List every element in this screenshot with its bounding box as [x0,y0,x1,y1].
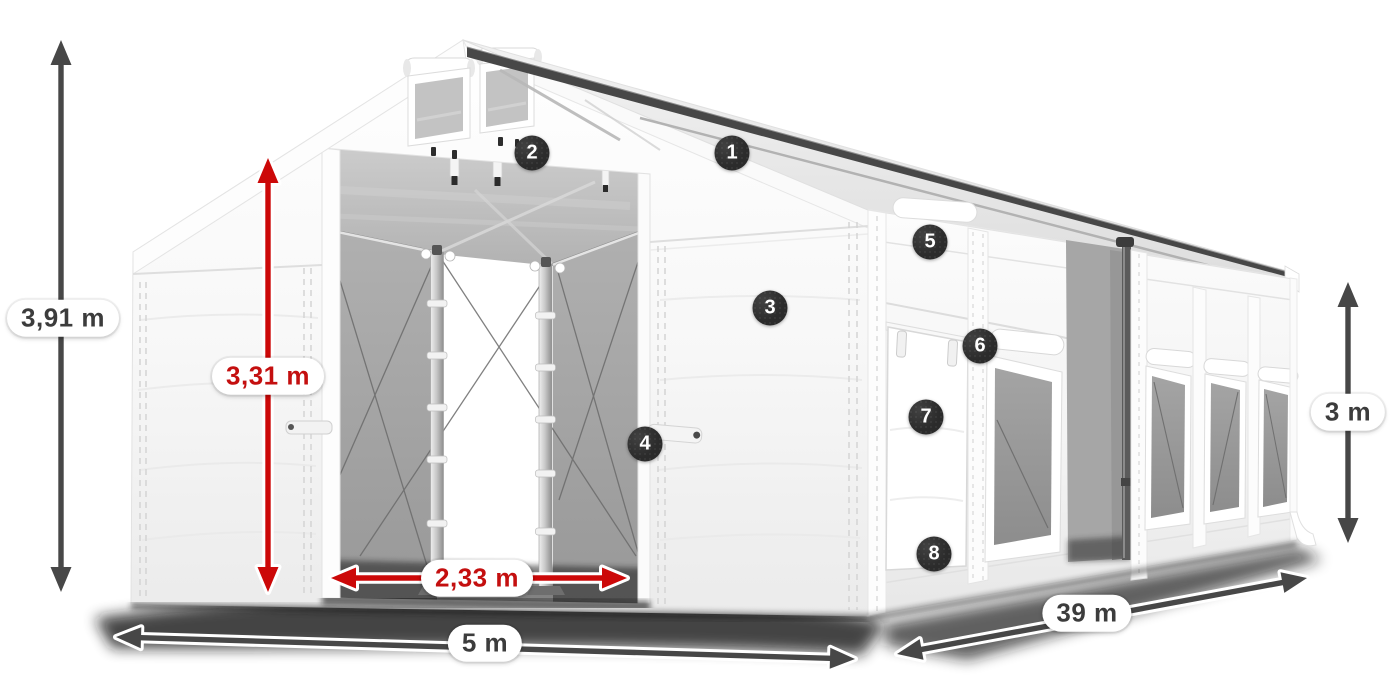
dimension-label-total-height: 3,91 m [7,300,119,337]
callout-badge-3[interactable]: 3 [753,291,788,326]
callout-badge-4[interactable]: 4 [628,427,663,462]
dimension-label-length: 39 m [1042,595,1131,632]
callout-badge-1[interactable]: 1 [715,136,750,171]
roof-vent-left [403,58,475,146]
side-window-3 [1203,358,1250,524]
dimension-label-side-height: 3 m [1311,394,1385,431]
callout-badge-8[interactable]: 8 [917,537,952,572]
callout-badge-6[interactable]: 6 [963,329,998,364]
tent-illustration [0,0,1400,700]
tent-product-diagram: 3,91 m 3,31 m 2,33 m 5 m 39 m 3 m 1 2 3 … [0,0,1400,700]
dimension-label-width: 5 m [448,625,522,662]
callout-badge-2[interactable]: 2 [515,136,550,171]
side-window-2 [1145,348,1197,530]
side-doorway-opening [1066,237,1134,562]
door-tieback-left [286,421,332,434]
side-door-flap [886,322,970,570]
callout-badge-5[interactable]: 5 [913,225,948,260]
dimension-label-entrance-height: 3,31 m [212,358,324,395]
callout-badge-7[interactable]: 7 [909,400,944,435]
dimension-label-entrance-width: 2,33 m [421,560,533,597]
tent-interior [322,148,650,604]
